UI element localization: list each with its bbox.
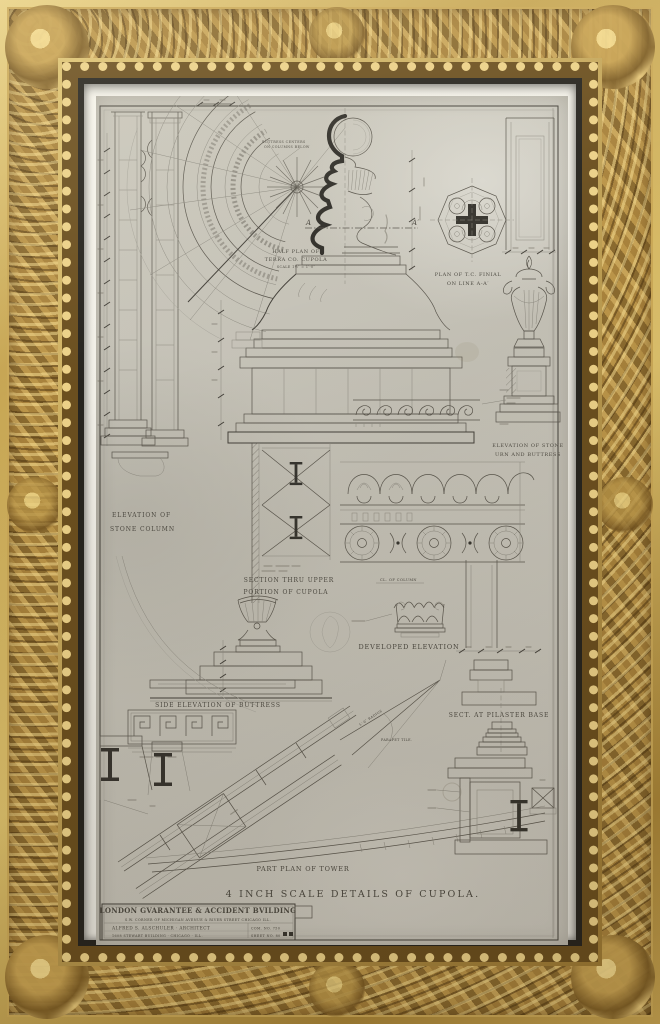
architectural-drawing: ELEVATION OF STONE COLUMN BUTTRE (96, 96, 568, 945)
frame-edge-ornament (7, 477, 63, 533)
title-block-office: 1608 STEWART BUILDING · CHICAGO · ILL. (112, 934, 203, 938)
stone-column-label: STONE COLUMN (110, 526, 175, 533)
ibeam-plan-details (100, 736, 190, 814)
stone-column-elevation: ELEVATION OF STONE COLUMN (98, 112, 188, 533)
frame-edge-ornament (597, 477, 653, 533)
frame-edge-ornament (309, 7, 365, 63)
fan-note: BUTTRESS CENTERS (262, 140, 306, 144)
title-block-sheet-no: SHEET NO. 80 (251, 934, 281, 938)
part-plan-label: PART PLAN OF TOWER (256, 865, 349, 873)
fan-note: ON COLUMNS BELOW (264, 145, 310, 149)
column-centerline-label: CL. OF COLUMN (380, 578, 417, 582)
radius-label: 5′-6″ RADIUS (358, 709, 383, 727)
sheet-titles: PART PLAN OF TOWER 4 INCH SCALE DETAILS … (226, 865, 481, 900)
framed-architectural-drawing-photo: ELEVATION OF STONE COLUMN BUTTRE (0, 0, 660, 1024)
corinthian-capital: DEVELOPED ELEVATION (352, 602, 459, 651)
section-marker-a: A (305, 219, 311, 227)
greek-key-band (128, 680, 295, 757)
developed-elevation-label: DEVELOPED ELEVATION (359, 643, 460, 651)
developed-elevation-frieze: CL. OF COLUMN (340, 462, 534, 583)
drawing-sheet: ELEVATION OF STONE COLUMN BUTTRE (96, 96, 568, 945)
right-pilaster-panel (502, 118, 556, 254)
finial-plan-label: ON LINE A-A′ (447, 281, 489, 287)
sheet-border (100, 106, 558, 940)
tower-base-section (428, 758, 556, 854)
main-title: 4 INCH SCALE DETAILS OF CUPOLA. (226, 889, 481, 900)
finial-plan-octagon: PLAN OF T.C. FINIAL ON LINE A-A′ (430, 178, 514, 287)
section-label: PORTION OF CUPOLA (243, 589, 328, 596)
title-block: LONDON GVARANTEE & ACCIDENT BVILDING S.W… (100, 904, 312, 940)
wave-scroll-band (353, 398, 520, 427)
pilaster-base-section: SECT. AT PILASTER BASE (449, 560, 550, 755)
fan-label: HALF PLAN OF (272, 249, 319, 255)
urn-label: ELEVATION OF STONE (492, 443, 563, 449)
title-block-building: LONDON GVARANTEE & ACCIDENT BVILDING (100, 906, 297, 915)
section-label: SECTION THRU UPPER (244, 577, 334, 584)
title-block-address: S.W. CORNER OF MICHIGAN AVENUE & RIVER S… (125, 918, 271, 922)
buttress-elevation-label: SIDE ELEVATION OF BUTTRESS (155, 702, 281, 709)
fan-label: TERRA CO. CUPOLA (265, 257, 328, 263)
cupola-section: SECTION THRU UPPER PORTION OF CUPOLA (212, 274, 479, 603)
buttress-urn-and-steps: SIDE ELEVATION OF BUTTRESS (150, 596, 350, 709)
stone-column-label: ELEVATION OF (112, 512, 171, 519)
frame-edge-ornament (309, 961, 365, 1017)
pilaster-base-label: SECT. AT PILASTER BASE (449, 712, 550, 719)
urn-label: URN AND BUTTRESS (495, 452, 561, 458)
parapet-tile-label: PARAPET TILE. (381, 738, 412, 742)
finial-plan-label: PLAN OF T.C. FINIAL (435, 272, 502, 278)
title-block-architect: ALFRED S. ALSCHULER · ARCHITECT (111, 927, 210, 932)
title-block-com-no: COM. NO. 750 (251, 927, 280, 931)
